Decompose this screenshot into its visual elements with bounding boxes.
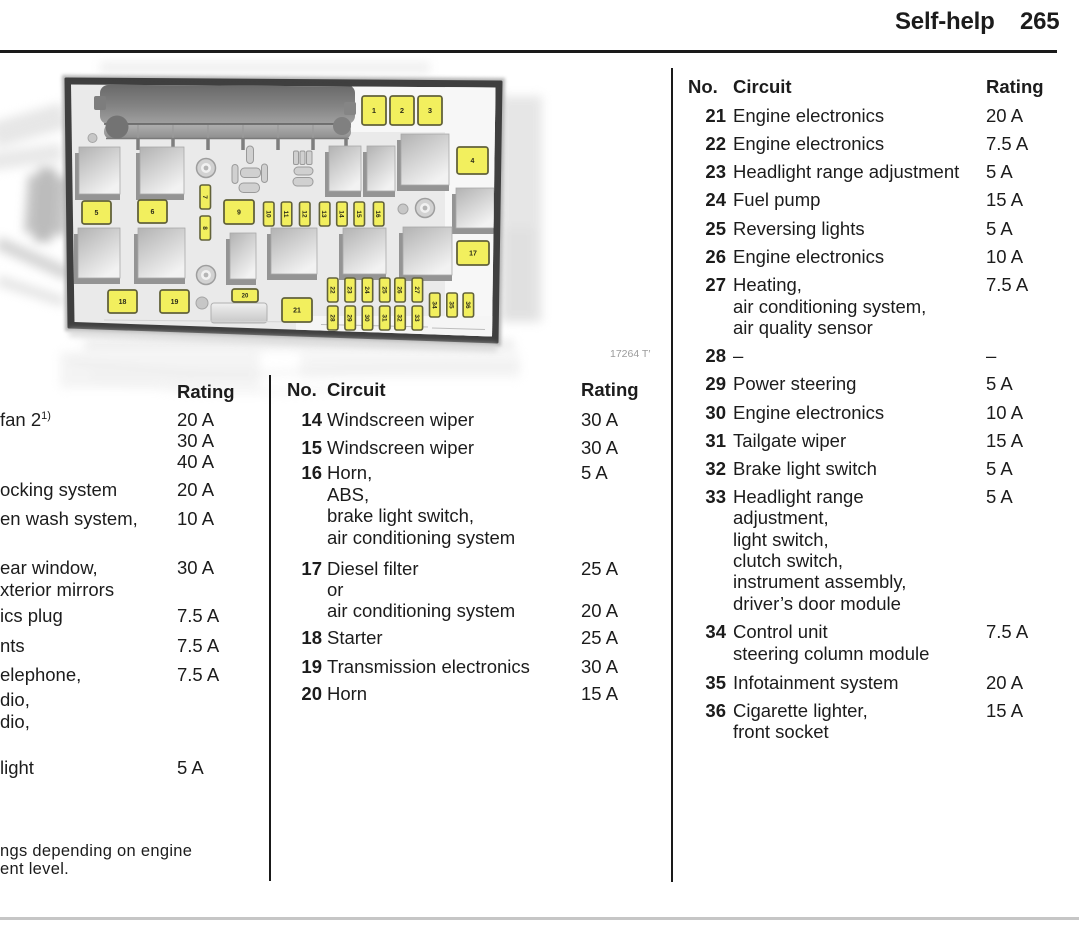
svg-text:13: 13	[320, 210, 327, 218]
svg-text:11: 11	[282, 211, 289, 218]
svg-text:5: 5	[95, 210, 99, 217]
svg-text:15: 15	[355, 210, 362, 218]
svg-text:10: 10	[264, 210, 271, 218]
svg-text:14: 14	[337, 210, 344, 218]
svg-text:16: 16	[374, 210, 381, 218]
svg-text:12: 12	[300, 210, 307, 218]
